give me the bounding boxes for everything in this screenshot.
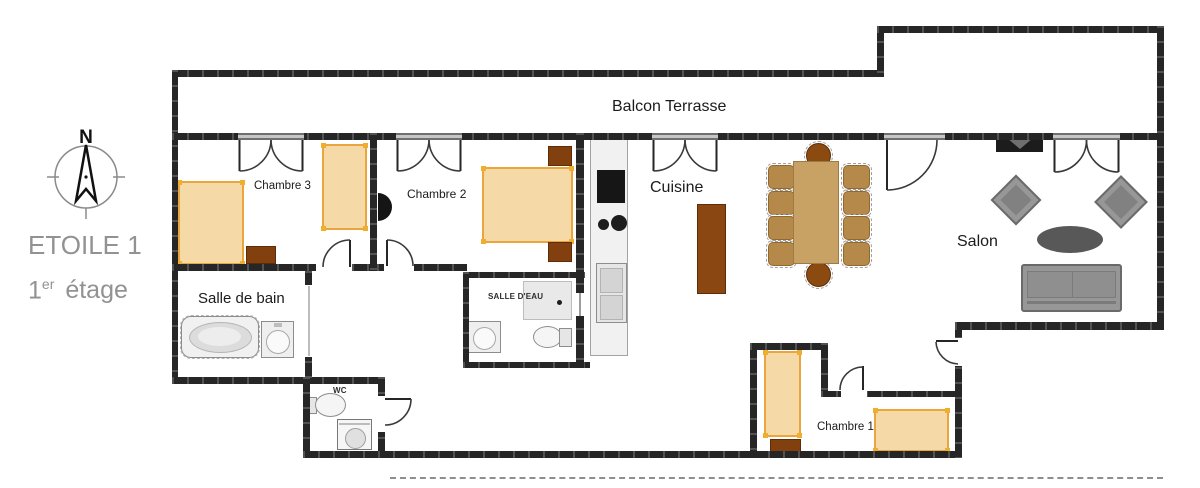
dining-chair: [768, 165, 795, 189]
compass-north-label: N: [79, 127, 93, 148]
shower-drain: [557, 300, 562, 305]
wall-fixture-halfdisc: [378, 193, 392, 221]
toilet-tank: [559, 328, 572, 347]
bed-double-bedroom3: [178, 181, 244, 265]
sliding-door-showerroom: [579, 293, 581, 316]
room-label-living: Salon: [957, 233, 998, 251]
kitchen-sink-icon: [596, 263, 627, 323]
door-opening-terrace: [955, 338, 962, 366]
cooktop-burner-icon: [611, 215, 627, 231]
door-arc: [429, 140, 461, 171]
compass-needle: [76, 145, 96, 201]
dining-chair: [768, 191, 795, 215]
wall-bottom: [303, 451, 962, 458]
bathtub-icon: [181, 316, 259, 358]
wall-outer-left: [172, 70, 178, 384]
door-arc: [385, 399, 411, 425]
french-door-living: [1053, 133, 1120, 140]
building-name: ETOILE 1: [28, 230, 142, 261]
armchair-seat: [1000, 184, 1031, 215]
floor-word: étage: [65, 276, 128, 304]
sofa-front-edge: [1027, 301, 1116, 304]
floor-title: 1er étage: [28, 276, 128, 305]
sink-bowl: [473, 327, 496, 350]
room-label-kitchen: Cuisine: [650, 179, 703, 197]
bed-single-bedroom3: [322, 144, 367, 230]
washing-machine-icon: [337, 419, 372, 450]
door-arc: [1087, 140, 1119, 172]
bed-corner: [945, 408, 950, 413]
door-opening-bedroom3: [316, 264, 352, 271]
dining-table: [793, 161, 839, 264]
bed-corner: [481, 166, 486, 171]
sofa: [1021, 264, 1122, 312]
terrace-edge-line: [390, 477, 1163, 479]
door-opening-wc: [378, 396, 385, 432]
room-label-bedroom3: Chambre 3: [254, 180, 311, 192]
door-opening-bedroom2: [384, 264, 414, 271]
bed-corner: [363, 226, 368, 231]
dresser-bedroom3: [246, 246, 276, 264]
armchair-right: [1094, 175, 1148, 229]
wall-outer-right: [1157, 26, 1164, 330]
dining-chair: [768, 242, 795, 266]
wall-bedroom3-bedroom2: [370, 133, 377, 271]
washer-door: [345, 428, 366, 449]
bed-corner: [321, 226, 326, 231]
toilet-bowl-icon: [315, 393, 346, 417]
room-label-balcony: Balcon Terrasse: [612, 98, 726, 116]
door-opening-bedroom1: [841, 391, 867, 397]
bed-single-bedroom1-left: [764, 351, 801, 437]
wall-balcony-step: [877, 26, 884, 77]
floor-plan: N Balcon Terrasse Chambre 3 Chambre 2 Cu…: [0, 0, 1200, 488]
nightstand-bedroom2-bottom: [548, 242, 572, 262]
dining-chair: [843, 242, 870, 266]
bed-corner: [569, 166, 574, 171]
bed-corner: [481, 239, 486, 244]
wall-bedroom1-top-left: [750, 343, 828, 350]
armchair-seat: [1104, 185, 1138, 219]
dining-chair: [843, 191, 870, 215]
door-dining-balcony: [884, 133, 945, 140]
wall-showerroom-left: [463, 272, 469, 368]
compass-rose-icon: N: [47, 127, 125, 219]
washer-panel: [339, 423, 370, 425]
door-arc: [387, 240, 413, 266]
sink-bowl: [266, 330, 290, 354]
room-label-bedroom2: Chambre 2: [407, 187, 466, 201]
room-label-showerroom: SALLE D'EAU: [488, 292, 543, 301]
sink-basin: [600, 295, 623, 320]
door-arc: [685, 140, 717, 171]
compass-center-dot: [84, 175, 87, 178]
kitchen-island: [697, 204, 726, 294]
wall-kitchen-west: [576, 133, 584, 368]
floor-number: 1: [28, 276, 42, 304]
dining-chair: [843, 165, 870, 189]
dining-chair: [768, 216, 795, 240]
showerroom-sink-icon: [467, 321, 501, 353]
wall-bathroom-bottom: [172, 377, 385, 384]
door-arc: [398, 140, 430, 171]
toilet-bowl-icon: [533, 326, 562, 348]
bed-corner: [363, 143, 368, 148]
bathroom-sink-icon: [261, 321, 294, 358]
door-arc: [887, 140, 937, 190]
bed-corner: [240, 180, 245, 185]
nightstand-bedroom2-top: [548, 146, 572, 166]
room-label-bathroom: Salle de bain: [198, 290, 285, 307]
dining-stool-bottom: [806, 262, 831, 287]
sink-basin: [600, 268, 623, 293]
door-arc: [654, 140, 686, 171]
door-arc: [323, 240, 350, 267]
door-arc: [271, 140, 303, 171]
bed-corner: [321, 143, 326, 148]
sliding-door-bathroom: [308, 286, 310, 356]
bed-corner: [797, 350, 802, 355]
wall-balcony-top-left: [172, 70, 884, 77]
bed-corner: [763, 433, 768, 438]
wall-bedroom1-jog: [821, 343, 828, 397]
dining-chair: [843, 216, 870, 240]
cooktop-burner-icon: [598, 219, 609, 230]
compass-circle: [55, 146, 117, 208]
armchair-left: [991, 175, 1042, 226]
oven-icon: [597, 170, 625, 203]
wall-balcony-top-right: [877, 26, 1164, 33]
french-door-kitchen: [652, 133, 718, 140]
door-arc: [840, 367, 863, 390]
floor-ordinal: er: [42, 276, 54, 292]
french-door-bedroom2: [396, 133, 462, 140]
bed-double-bedroom2: [482, 167, 573, 243]
wall-living-bottom: [955, 322, 1164, 330]
bathtub-basin: [198, 327, 241, 346]
room-label-bedroom1: Chambre 1: [817, 421, 874, 433]
wall-wc-west: [303, 377, 310, 458]
bed-single-bedroom1-right: [874, 409, 949, 452]
door-arc: [240, 140, 272, 171]
sofa-cushion-divider: [1072, 271, 1073, 298]
bed-corner: [873, 408, 878, 413]
french-door-bedroom3: [238, 133, 304, 140]
room-label-wc: WC: [333, 386, 347, 395]
door-arc: [1055, 140, 1087, 172]
coffee-table: [1037, 226, 1103, 253]
wall-bedroom1-west: [750, 343, 757, 458]
wall-showerroom-bottom: [463, 362, 590, 368]
bed-corner: [763, 350, 768, 355]
bed-corner: [797, 433, 802, 438]
sink-tap: [274, 323, 282, 327]
wall-showerroom-top: [463, 272, 585, 278]
